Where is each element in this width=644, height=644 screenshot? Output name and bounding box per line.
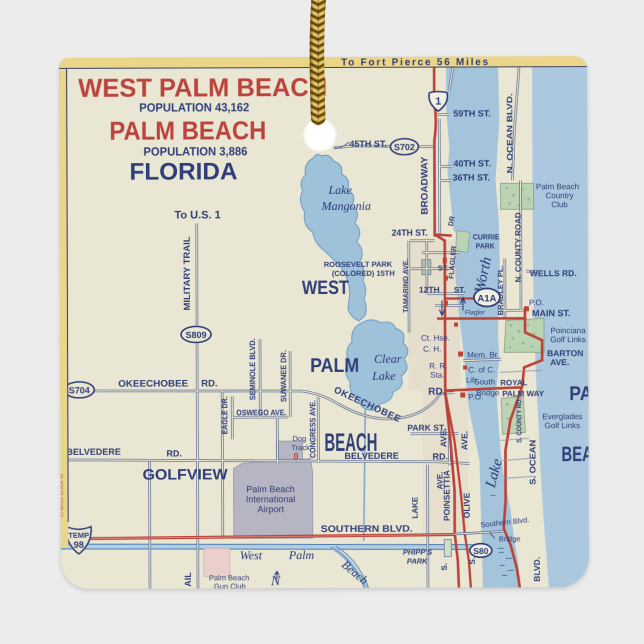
svg-text:S. OCEAN: S. OCEAN [527,439,537,484]
svg-text:S702: S702 [393,142,414,152]
svg-text:POPULATION 43,162: POPULATION 43,162 [139,100,249,114]
svg-text:WELLS RD.: WELLS RD. [529,268,576,278]
svg-text:FLORIDA: FLORIDA [129,158,237,185]
svg-text:0: 0 [293,451,298,461]
svg-text:To Fort Pierce 56 Miles: To Fort Pierce 56 Miles [341,56,488,68]
svg-text:Lake: Lake [327,182,352,196]
svg-text:Airport: Airport [257,504,284,514]
svg-text:LAKE: LAKE [410,496,419,518]
svg-text:N. COUNTY ROAD: N. COUNTY ROAD [513,212,522,282]
svg-text:BELVEDERE: BELVEDERE [66,446,120,456]
svg-text:MAIN ST.: MAIN ST. [531,308,570,318]
svg-text:Clear: Clear [374,351,402,365]
svg-text:Palm Beach: Palm Beach [535,182,578,191]
svg-text:ROYAL: ROYAL [500,378,527,387]
svg-text:ROOSEVELT PARK: ROOSEVELT PARK [323,259,392,268]
svg-text:AVE.: AVE. [550,357,569,367]
svg-text:A1A: A1A [477,293,496,304]
svg-text:TO BELLE GLADE 40: TO BELLE GLADE 40 [59,473,64,518]
svg-text:RD.: RD. [201,378,217,389]
svg-text:OSWEGO AVE.: OSWEGO AVE. [236,408,286,417]
svg-text:RD.: RD. [166,448,182,458]
svg-text:59TH ST.: 59TH ST. [453,108,491,118]
svg-text:PARK: PARK [406,556,427,565]
svg-text:OLIVE: OLIVE [461,492,471,518]
svg-text:SUWANEE DR.: SUWANEE DR. [279,350,288,402]
svg-text:N. OCEAN BLVD.: N. OCEAN BLVD. [505,93,514,173]
svg-text:PALM: PALM [310,354,359,376]
svg-text:S.: S. [439,563,448,571]
svg-text:WEST: WEST [301,276,348,298]
svg-text:MILITARY TRAIL: MILITARY TRAIL [181,235,191,310]
svg-text:S80: S80 [473,545,488,555]
svg-text:P.O.: P.O. [528,298,543,307]
svg-text:AIL: AIL [182,571,192,586]
svg-text:POPULATION 3,886: POPULATION 3,886 [143,144,247,158]
svg-text:Golf Links: Golf Links [544,421,580,430]
svg-text:Ct. Hse.: Ct. Hse. [421,333,450,342]
svg-text:Mem. Br.: Mem. Br. [467,350,499,359]
svg-text:GOLFVIEW: GOLFVIEW [142,466,228,483]
svg-text:OKEECHOBEE: OKEECHOBEE [118,378,188,389]
svg-text:Sta.: Sta. [430,370,444,379]
svg-text:Palm Beach: Palm Beach [208,573,248,582]
svg-text:45TH ST.: 45TH ST. [349,138,387,148]
svg-text:PAL: PAL [569,383,589,405]
svg-text:RD.: RD. [432,451,448,461]
svg-text:PHIPP'S: PHIPP'S [402,547,431,556]
svg-text:Golf Links: Golf Links [550,335,586,344]
svg-text:Bridge: Bridge [498,534,520,543]
svg-text:BRADLEY PL.: BRADLEY PL. [495,265,504,315]
svg-text:AVE.: AVE. [438,427,448,446]
svg-text:International: International [245,494,295,504]
svg-text:DR: DR [447,215,456,226]
svg-text:Poinciana: Poinciana [550,326,586,335]
svg-text:TEMP: TEMP [68,531,89,540]
svg-text:BEAC: BEAC [561,443,589,466]
svg-text:Palm: Palm [287,548,314,562]
svg-text:PALM WAY: PALM WAY [502,389,544,398]
svg-text:Lake: Lake [371,368,396,382]
svg-text:40TH ST.: 40TH ST. [453,158,491,168]
svg-text:S704: S704 [68,385,89,395]
svg-text:POINSETTIA: POINSETTIA [441,470,451,521]
svg-text:Mangonia: Mangonia [320,198,370,212]
svg-text:ST.: ST. [453,285,465,294]
svg-text:PALM BEACH: PALM BEACH [109,115,266,146]
svg-text:SOUTHERN BLVD.: SOUTHERN BLVD. [320,523,412,534]
svg-text:PARK: PARK [475,241,495,250]
svg-text:BLVD.: BLVD. [531,556,541,581]
svg-text:CURRIE: CURRIE [472,232,499,241]
svg-text:Bridge: Bridge [476,388,500,397]
svg-text:Country: Country [545,191,573,200]
svg-text:South: South [474,377,495,386]
svg-text:AVE.: AVE. [459,430,469,449]
svg-text:S. COUNTY RD.: S. COUNTY RD. [516,397,523,442]
svg-text:R. R.: R. R. [429,361,447,370]
svg-text:24TH ST.: 24TH ST. [391,227,427,237]
svg-text:N: N [269,574,280,589]
svg-text:S.: S. [467,556,476,564]
svg-text:BELVEDERE: BELVEDERE [344,450,398,460]
svg-text:Gun Club: Gun Club [213,581,245,588]
svg-text:BROADWAY: BROADWAY [419,155,430,214]
svg-text:SEMINOLE BLVD.: SEMINOLE BLVD. [248,338,257,400]
svg-text:Dog: Dog [292,434,306,443]
svg-text:EAGLE DR.: EAGLE DR. [220,396,229,434]
svg-text:WEST PALM BEACH: WEST PALM BEACH [78,71,327,102]
svg-text:Palm Beach: Palm Beach [246,484,295,494]
svg-text:C. of C.: C. of C. [468,365,495,374]
svg-text:(COLORED) 15TH: (COLORED) 15TH [331,268,394,277]
svg-text:ST.: ST. [437,263,448,272]
svg-text:West: West [239,548,262,562]
svg-text:RD.: RD. [428,386,445,397]
svg-text:Everglades: Everglades [542,412,582,421]
svg-text:To U.S. 1: To U.S. 1 [174,209,220,221]
svg-text:98: 98 [73,539,83,550]
svg-text:1: 1 [435,95,441,107]
svg-text:S809: S809 [185,329,206,339]
svg-text:C. H.: C. H. [423,344,441,353]
svg-text:Flagler: Flagler [464,309,485,316]
svg-text:12TH: 12TH [418,284,439,294]
svg-text:36TH ST.: 36TH ST. [452,172,490,182]
svg-text:TAMARIND AVE.: TAMARIND AVE. [402,258,409,312]
svg-text:Club: Club [551,200,568,209]
